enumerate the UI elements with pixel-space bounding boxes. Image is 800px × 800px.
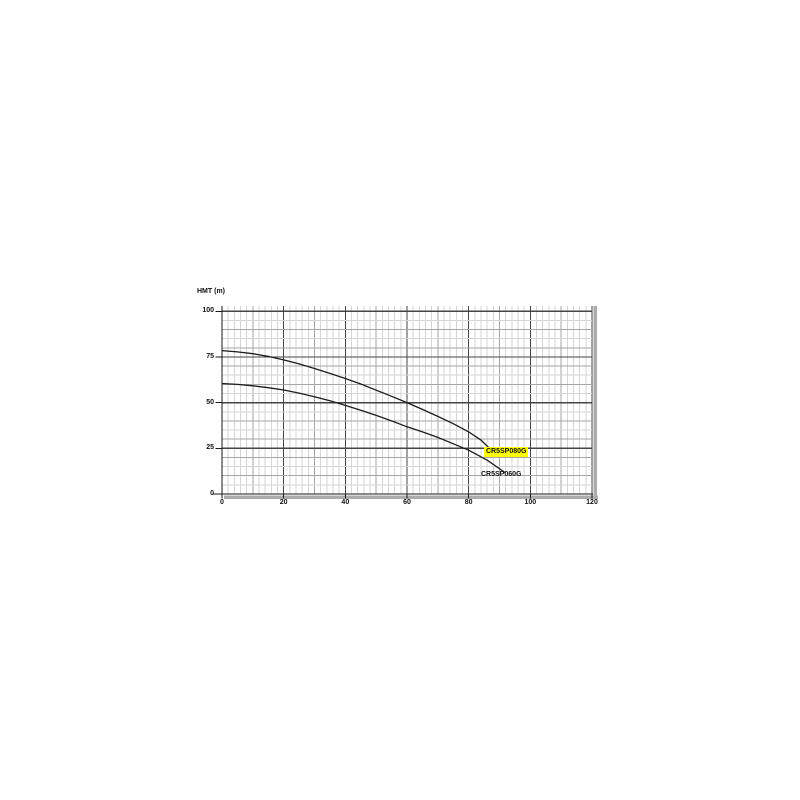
series-label-cr5sp080g: CR5SP080G: [484, 447, 528, 457]
y-axis-title: HMT (m): [197, 288, 225, 296]
pump-curve-chart: HMT (m) CR5SP080G CR5SP060G 025507510002…: [0, 0, 800, 800]
page: HMT (m) CR5SP080G CR5SP060G 025507510002…: [0, 0, 800, 800]
x-tick-label: 40: [333, 499, 357, 507]
x-tick-label: 0: [210, 499, 234, 507]
series-label-cr5sp060g: CR5SP060G: [481, 470, 521, 480]
plot-area: [0, 0, 800, 800]
x-tick-label: 20: [272, 499, 296, 507]
x-tick-label: 80: [457, 499, 481, 507]
x-tick-label: 120: [580, 499, 604, 507]
y-tick-label: 50: [196, 399, 214, 407]
y-tick-label: 75: [196, 353, 214, 361]
y-tick-label: 100: [196, 307, 214, 315]
y-tick-label: 0: [196, 490, 214, 498]
x-tick-label: 100: [518, 499, 542, 507]
y-tick-label: 25: [196, 444, 214, 452]
x-tick-label: 60: [395, 499, 419, 507]
